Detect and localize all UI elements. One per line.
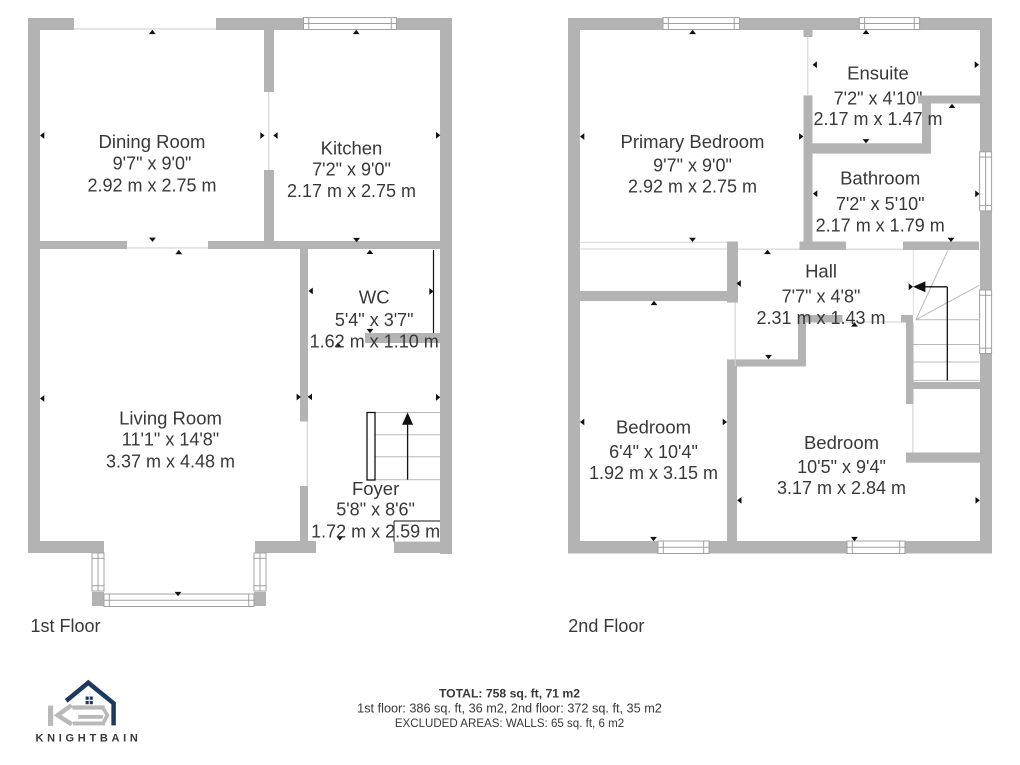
svg-text:2.92 m x 2.75 m: 2.92 m x 2.75 m — [87, 175, 216, 195]
svg-text:7'2" x 5'10": 7'2" x 5'10" — [836, 194, 925, 214]
svg-text:Kitchen: Kitchen — [321, 137, 383, 158]
svg-text:2nd Floor: 2nd Floor — [568, 616, 644, 636]
svg-text:2.31 m x 1.43 m: 2.31 m x 1.43 m — [756, 308, 885, 328]
svg-text:Bathroom: Bathroom — [840, 167, 920, 188]
svg-text:Living Room: Living Room — [119, 407, 222, 428]
svg-text:10'5" x 9'4": 10'5" x 9'4" — [797, 457, 886, 477]
svg-text:Dining Room: Dining Room — [99, 131, 206, 152]
svg-text:Bedroom: Bedroom — [616, 417, 691, 438]
svg-text:Primary Bedroom: Primary Bedroom — [621, 131, 765, 152]
svg-text:2.17 m x 2.75 m: 2.17 m x 2.75 m — [287, 181, 416, 201]
svg-text:Hall: Hall — [805, 260, 837, 281]
svg-text:Ensuite: Ensuite — [847, 62, 909, 83]
svg-text:7'2" x 9'0": 7'2" x 9'0" — [312, 160, 391, 180]
svg-text:3.17 m x 2.84 m: 3.17 m x 2.84 m — [777, 478, 906, 498]
svg-text:5'4" x 3'7": 5'4" x 3'7" — [335, 310, 414, 330]
svg-text:1st Floor: 1st Floor — [31, 616, 101, 636]
svg-text:2.17 m x 1.79 m: 2.17 m x 1.79 m — [816, 215, 945, 235]
svg-text:1.92 m x 3.15 m: 1.92 m x 3.15 m — [589, 463, 718, 483]
svg-text:7'2" x 4'10": 7'2" x 4'10" — [834, 88, 923, 108]
svg-text:1.62 m x 1.10 m: 1.62 m x 1.10 m — [310, 332, 439, 352]
svg-text:TOTAL: 758 sq. ft, 71 m2: TOTAL: 758 sq. ft, 71 m2 — [439, 687, 580, 701]
svg-text:6'4" x 10'4": 6'4" x 10'4" — [609, 442, 698, 462]
svg-text:1.72 m x 2.59 m: 1.72 m x 2.59 m — [311, 521, 440, 541]
svg-text:1st floor: 386 sq. ft, 36 m2,: 1st floor: 386 sq. ft, 36 m2, 2nd floor:… — [357, 701, 662, 715]
svg-text:WC: WC — [359, 287, 390, 308]
svg-text:9'7" x 9'0": 9'7" x 9'0" — [653, 155, 732, 175]
svg-text:KNIGHTBAIN: KNIGHTBAIN — [36, 733, 142, 745]
svg-text:9'7" x 9'0": 9'7" x 9'0" — [113, 153, 192, 173]
svg-text:5'8" x 8'6": 5'8" x 8'6" — [336, 499, 415, 519]
svg-text:Bedroom: Bedroom — [804, 432, 879, 453]
svg-text:3.37 m x 4.48 m: 3.37 m x 4.48 m — [106, 451, 235, 471]
svg-text:2.92 m x 2.75 m: 2.92 m x 2.75 m — [628, 177, 757, 197]
svg-text:Foyer: Foyer — [352, 478, 399, 499]
svg-text:EXCLUDED AREAS: WALLS: 65 sq.: EXCLUDED AREAS: WALLS: 65 sq. ft, 6 m2 — [395, 718, 624, 730]
svg-text:11'1" x 14'8": 11'1" x 14'8" — [122, 430, 219, 450]
svg-text:7'7" x 4'8": 7'7" x 4'8" — [782, 287, 861, 307]
svg-text:2.17 m x 1.47 m: 2.17 m x 1.47 m — [813, 109, 942, 129]
